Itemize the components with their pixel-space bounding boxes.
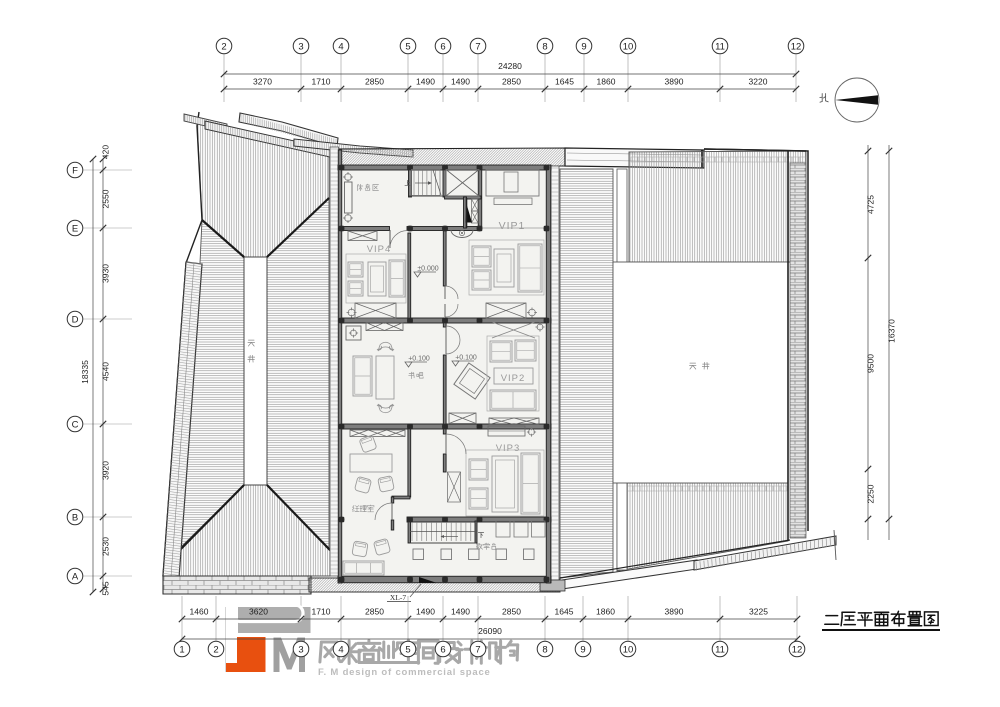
svg-text:F. M design of commercial spac: F. M design of commercial space bbox=[318, 667, 491, 678]
svg-text:VIP4: VIP4 bbox=[367, 244, 392, 255]
svg-text:8: 8 bbox=[542, 41, 547, 52]
svg-text:1710: 1710 bbox=[312, 607, 331, 617]
svg-text:2850: 2850 bbox=[502, 77, 521, 87]
svg-text:1: 1 bbox=[179, 644, 184, 655]
svg-text:18335: 18335 bbox=[80, 360, 90, 384]
svg-text:3930: 3930 bbox=[101, 264, 111, 283]
svg-text:3890: 3890 bbox=[665, 77, 684, 87]
svg-text:3890: 3890 bbox=[665, 607, 684, 617]
svg-text:E: E bbox=[72, 223, 78, 234]
svg-text:3: 3 bbox=[298, 644, 303, 655]
svg-text:3: 3 bbox=[298, 41, 303, 52]
svg-text:2550: 2550 bbox=[101, 189, 111, 208]
svg-text:5: 5 bbox=[405, 41, 410, 52]
svg-text:11: 11 bbox=[715, 644, 725, 655]
svg-text:24280: 24280 bbox=[498, 61, 522, 71]
svg-text:9: 9 bbox=[580, 644, 585, 655]
svg-text:3920: 3920 bbox=[101, 461, 111, 480]
svg-text:1490: 1490 bbox=[451, 77, 470, 87]
svg-text:7: 7 bbox=[475, 644, 480, 655]
svg-text:8: 8 bbox=[542, 644, 547, 655]
svg-text:F: F bbox=[72, 165, 78, 176]
svg-text:9500: 9500 bbox=[866, 354, 876, 373]
svg-text:2: 2 bbox=[213, 644, 218, 655]
svg-text:VIP2: VIP2 bbox=[501, 373, 526, 384]
svg-text:VIP3: VIP3 bbox=[496, 443, 521, 454]
svg-text:2250: 2250 bbox=[866, 484, 876, 503]
svg-text:2850: 2850 bbox=[365, 607, 384, 617]
svg-text:12: 12 bbox=[791, 41, 802, 52]
svg-text:2850: 2850 bbox=[365, 77, 384, 87]
svg-text:1645: 1645 bbox=[555, 607, 574, 617]
svg-text:4: 4 bbox=[338, 644, 343, 655]
svg-text:2850: 2850 bbox=[502, 607, 521, 617]
svg-text:1490: 1490 bbox=[416, 607, 435, 617]
svg-text:26090: 26090 bbox=[478, 626, 502, 636]
svg-text:1860: 1860 bbox=[596, 607, 615, 617]
svg-text:±0.000: ±0.000 bbox=[417, 266, 438, 273]
svg-text:+0.100: +0.100 bbox=[408, 356, 430, 363]
svg-text:12: 12 bbox=[792, 644, 803, 655]
svg-text:1490: 1490 bbox=[451, 607, 470, 617]
svg-text:1460: 1460 bbox=[190, 607, 209, 617]
svg-text:9: 9 bbox=[581, 41, 586, 52]
svg-text:2530: 2530 bbox=[101, 537, 111, 556]
svg-text:+0.100: +0.100 bbox=[455, 355, 477, 362]
svg-text:3220: 3220 bbox=[749, 77, 768, 87]
svg-text:1860: 1860 bbox=[597, 77, 616, 87]
svg-text:3270: 3270 bbox=[253, 77, 272, 87]
svg-text:VIP1: VIP1 bbox=[499, 220, 526, 232]
svg-text:7: 7 bbox=[475, 41, 480, 52]
svg-text:10: 10 bbox=[623, 644, 634, 655]
svg-text:4725: 4725 bbox=[866, 195, 876, 214]
svg-text:1490: 1490 bbox=[416, 77, 435, 87]
svg-text:3620: 3620 bbox=[249, 607, 268, 617]
svg-text:16370: 16370 bbox=[887, 319, 897, 343]
svg-text:5: 5 bbox=[405, 644, 410, 655]
svg-text:545: 545 bbox=[101, 581, 111, 595]
svg-text:1645: 1645 bbox=[555, 77, 574, 87]
svg-text:D: D bbox=[72, 314, 79, 325]
svg-text:10: 10 bbox=[623, 41, 634, 52]
svg-text:6: 6 bbox=[440, 644, 445, 655]
svg-text:XL-7: XL-7 bbox=[390, 593, 406, 602]
svg-text:4540: 4540 bbox=[101, 362, 111, 381]
svg-text:C: C bbox=[72, 419, 79, 430]
svg-text:3225: 3225 bbox=[749, 607, 768, 617]
svg-text:420: 420 bbox=[101, 145, 111, 159]
svg-text:B: B bbox=[72, 512, 78, 523]
svg-text:6: 6 bbox=[440, 41, 445, 52]
svg-text:11: 11 bbox=[715, 41, 725, 52]
svg-text:A: A bbox=[72, 571, 79, 582]
svg-text:2: 2 bbox=[221, 41, 226, 52]
svg-text:1710: 1710 bbox=[312, 77, 331, 87]
svg-text:4: 4 bbox=[338, 41, 343, 52]
